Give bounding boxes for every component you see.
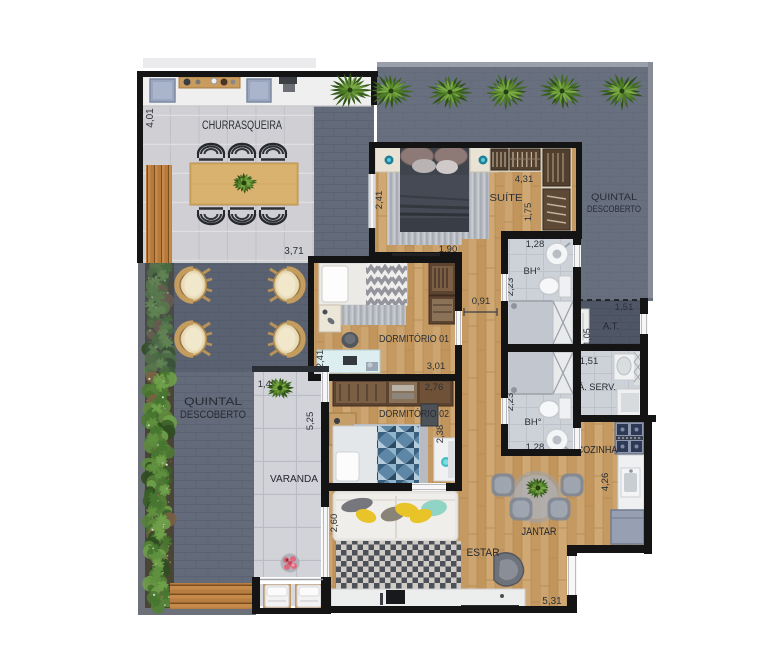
svg-text:A.T.: A.T. [603, 321, 619, 332]
svg-text:1,75: 1,75 [523, 203, 534, 222]
svg-text:1,05: 1,05 [582, 328, 592, 346]
svg-text:5,25: 5,25 [305, 412, 316, 431]
svg-text:QUINTAL: QUINTAL [591, 192, 637, 203]
svg-text:2,41: 2,41 [315, 350, 326, 369]
svg-text:2,38: 2,38 [435, 425, 446, 444]
svg-text:COZINHA: COZINHA [577, 445, 618, 456]
svg-text:4,31: 4,31 [515, 174, 534, 185]
svg-text:VARANDA: VARANDA [270, 473, 318, 485]
svg-text:DORMITÓRIO 02: DORMITÓRIO 02 [379, 407, 449, 420]
svg-text:0,91: 0,91 [472, 296, 491, 307]
svg-text:1,28: 1,28 [526, 239, 545, 250]
svg-text:DORMITÓRIO 01: DORMITÓRIO 01 [379, 332, 449, 345]
svg-text:JANTAR: JANTAR [522, 526, 557, 538]
svg-text:3,01: 3,01 [427, 361, 446, 372]
svg-text:2,76: 2,76 [425, 382, 444, 393]
svg-text:QUINTAL: QUINTAL [184, 396, 242, 408]
svg-text:2,60: 2,60 [329, 514, 340, 533]
svg-text:4,26: 4,26 [600, 473, 611, 492]
svg-text:4,01: 4,01 [145, 108, 156, 128]
svg-text:1,51: 1,51 [580, 356, 599, 367]
svg-text:ESTAR: ESTAR [467, 547, 500, 559]
svg-text:BH°: BH° [525, 417, 542, 428]
svg-text:3,71: 3,71 [284, 246, 304, 257]
svg-text:Á. SERV.: Á. SERV. [578, 382, 616, 393]
svg-text:DESCOBERTO: DESCOBERTO [180, 409, 246, 421]
svg-text:1,51: 1,51 [615, 302, 634, 313]
svg-text:2,41: 2,41 [374, 191, 385, 210]
svg-text:BH°: BH° [524, 266, 541, 277]
svg-text:DESCOBERTO: DESCOBERTO [587, 204, 641, 215]
svg-text:5,31: 5,31 [542, 596, 562, 607]
svg-text:CHURRASQUEIRA: CHURRASQUEIRA [202, 120, 282, 132]
svg-text:SUÍTE: SUÍTE [490, 191, 523, 204]
